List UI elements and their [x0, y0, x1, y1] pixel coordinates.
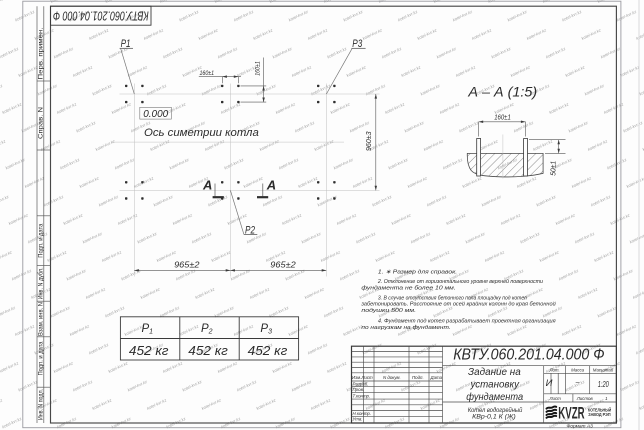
svg-text:kotel-kvr.kz: kotel-kvr.kz — [609, 212, 631, 226]
svg-text:kotel-kvr.kz: kotel-kvr.kz — [381, 46, 403, 60]
svg-text:kotel-kvr.kz: kotel-kvr.kz — [249, 286, 271, 300]
svg-text:965±2: 965±2 — [270, 261, 296, 270]
svg-text:kotel-kvr.kz: kotel-kvr.kz — [487, 0, 509, 4]
svg-text:1: 1 — [605, 396, 608, 401]
svg-text:kotel-kvr.kz: kotel-kvr.kz — [140, 286, 162, 300]
svg-text:Утв.: Утв. — [353, 417, 363, 422]
svg-text:kotel-kvr.kz: kotel-kvr.kz — [307, 27, 329, 41]
svg-text:kotel-kvr.kz: kotel-kvr.kz — [236, 379, 258, 393]
svg-text:kotel-kvr.kz: kotel-kvr.kz — [127, 64, 149, 78]
svg-text:подушки 500 мм.: подушки 500 мм. — [361, 308, 416, 314]
svg-text:kotel-kvr.kz: kotel-kvr.kz — [442, 157, 464, 171]
svg-text:960±3: 960±3 — [364, 131, 373, 151]
svg-text:kotel-kvr.kz: kotel-kvr.kz — [66, 268, 88, 282]
svg-text:kotel-kvr.kz: kotel-kvr.kz — [616, 323, 638, 337]
svg-text:kotel-kvr.kz: kotel-kvr.kz — [111, 101, 133, 115]
svg-text:kotel-kvr.kz: kotel-kvr.kz — [46, 249, 68, 263]
svg-text:kotel-kvr.kz: kotel-kvr.kz — [320, 249, 342, 263]
svg-text:kotel-kvr.kz: kotel-kvr.kz — [210, 249, 232, 263]
svg-text:kotel-kvr.kz: kotel-kvr.kz — [91, 397, 113, 411]
svg-text:kotel-kvr.kz: kotel-kvr.kz — [294, 120, 316, 134]
svg-text:установку: установку — [469, 380, 519, 391]
svg-text:kotel-kvr.kz: kotel-kvr.kz — [397, 9, 419, 23]
svg-text:kotel-kvr.kz: kotel-kvr.kz — [558, 268, 580, 282]
svg-text:kotel-kvr.kz: kotel-kvr.kz — [458, 120, 480, 134]
svg-text:Ось симетрии котла: Ось симетрии котла — [144, 127, 259, 139]
svg-text:Подп.: Подп. — [412, 375, 424, 380]
svg-text:0.000: 0.000 — [143, 109, 168, 120]
svg-text:kotel-kvr.kz: kotel-kvr.kz — [313, 138, 335, 152]
svg-text:kotel-kvr.kz: kotel-kvr.kz — [452, 323, 474, 337]
svg-text:kotel-kvr.kz: kotel-kvr.kz — [426, 194, 448, 208]
svg-text:фундамента: фундамента — [466, 391, 523, 403]
svg-text:4. Фундамент под котел разраба: 4. Фундамент под котел разрабатывает про… — [378, 319, 557, 325]
svg-text:kotel-kvr.kz: kotel-kvr.kz — [104, 305, 126, 319]
svg-text:kotel-kvr.kz: kotel-kvr.kz — [43, 194, 65, 208]
svg-text:kotel-kvr.kz: kotel-kvr.kz — [622, 120, 644, 134]
svg-text:N докум.: N докум. — [383, 375, 401, 380]
svg-text:kotel-kvr.kz: kotel-kvr.kz — [146, 397, 168, 411]
svg-text:kotel-kvr.kz: kotel-kvr.kz — [207, 194, 229, 208]
svg-text:kotel-kvr.kz: kotel-kvr.kz — [198, 27, 220, 41]
svg-text:kotel-kvr.kz: kotel-kvr.kz — [162, 360, 184, 374]
svg-text:Масштаб: Масштаб — [593, 368, 614, 373]
svg-text:kotel-kvr.kz: kotel-kvr.kz — [0, 360, 20, 374]
svg-text:kotel-kvr.kz: kotel-kvr.kz — [304, 286, 326, 300]
svg-text:kotel-kvr.kz: kotel-kvr.kz — [410, 231, 432, 245]
svg-text:kotel-kvr.kz: kotel-kvr.kz — [256, 83, 278, 97]
svg-text:kotel-kvr.kz: kotel-kvr.kz — [326, 360, 348, 374]
svg-text:2. Отклонение от горизонтально: 2. Отклонение от горизонтального уровня … — [377, 278, 544, 285]
svg-text:ЗАВОД РЭП: ЗАВОД РЭП — [588, 412, 610, 417]
svg-text:kotel-kvr.kz: kotel-kvr.kz — [349, 120, 371, 134]
svg-text:kotel-kvr.kz: kotel-kvr.kz — [85, 286, 107, 300]
svg-text:kotel-kvr.kz: kotel-kvr.kz — [471, 27, 493, 41]
svg-text:kotel-kvr.kz: kotel-kvr.kz — [272, 360, 294, 374]
svg-text:kotel-kvr.kz: kotel-kvr.kz — [600, 46, 622, 60]
svg-text:P1: P1 — [142, 323, 154, 336]
svg-text:kotel-kvr.kz: kotel-kvr.kz — [484, 249, 506, 263]
svg-text:kotel-kvr.kz: kotel-kvr.kz — [310, 397, 332, 411]
svg-text:Котел водогрейный: Котел водогрейный — [468, 407, 523, 414]
svg-text:kotel-kvr.kz: kotel-kvr.kz — [201, 83, 223, 97]
svg-text:kotel-kvr.kz: kotel-kvr.kz — [178, 323, 200, 337]
svg-text:kotel-kvr.kz: kotel-kvr.kz — [407, 175, 429, 189]
svg-text:kotel-kvr.kz: kotel-kvr.kz — [72, 64, 94, 78]
svg-text:kotel-kvr.kz: kotel-kvr.kz — [53, 360, 75, 374]
svg-text:kotel-kvr.kz: kotel-kvr.kz — [88, 27, 110, 41]
svg-text:kotel-kvr.kz: kotel-kvr.kz — [149, 138, 171, 152]
svg-text:kotel-kvr.kz: kotel-kvr.kz — [255, 397, 277, 411]
svg-text:kotel-kvr.kz: kotel-kvr.kz — [597, 305, 619, 319]
svg-text:kotel-kvr.kz: kotel-kvr.kz — [0, 249, 14, 263]
svg-text:kotel-kvr.kz: kotel-kvr.kz — [526, 27, 548, 41]
svg-text:kotel-kvr.kz: kotel-kvr.kz — [17, 64, 39, 78]
svg-text:kotel-kvr.kz: kotel-kvr.kz — [548, 101, 570, 115]
svg-text:kotel-kvr.kz: kotel-kvr.kz — [326, 46, 348, 60]
svg-text:kotel-kvr.kz: kotel-kvr.kz — [278, 157, 300, 171]
svg-text:kotel-kvr.kz: kotel-kvr.kz — [153, 194, 175, 208]
svg-text:А: А — [266, 178, 276, 193]
svg-text:Лит.: Лит. — [548, 368, 559, 373]
svg-text:kotel-kvr.kz: kotel-kvr.kz — [53, 46, 75, 60]
svg-text:kotel-kvr.kz: kotel-kvr.kz — [535, 194, 557, 208]
svg-text:kotel-kvr.kz: kotel-kvr.kz — [619, 64, 641, 78]
svg-text:КВр-0,1 К (Ж): КВр-0,1 К (Ж) — [472, 415, 516, 421]
svg-text:kotel-kvr.kz: kotel-kvr.kz — [297, 175, 319, 189]
svg-text:Формат А3: Формат А3 — [567, 424, 594, 430]
svg-text:kotel-kvr.kz: kotel-kvr.kz — [516, 175, 538, 189]
svg-text:kotel-kvr.kz: kotel-kvr.kz — [510, 64, 532, 78]
svg-text:kotel-kvr.kz: kotel-kvr.kz — [564, 64, 586, 78]
svg-text:kotel-kvr.kz: kotel-kvr.kz — [8, 212, 30, 226]
svg-text:160±1: 160±1 — [494, 115, 511, 122]
svg-text:kotel-kvr.kz: kotel-kvr.kz — [217, 360, 239, 374]
svg-text:kotel-kvr.kz: kotel-kvr.kz — [172, 212, 194, 226]
svg-text:kotel-kvr.kz: kotel-kvr.kz — [88, 342, 110, 356]
svg-text:kotel-kvr.kz: kotel-kvr.kz — [519, 231, 541, 245]
svg-text:kotel-kvr.kz: kotel-kvr.kz — [159, 305, 181, 319]
svg-text:–: – — [575, 379, 580, 386]
svg-text:А: А — [202, 178, 212, 193]
svg-text:kotel-kvr.kz: kotel-kvr.kz — [542, 0, 564, 4]
svg-text:kotel-kvr.kz: kotel-kvr.kz — [194, 286, 216, 300]
svg-text:kotel-kvr.kz: kotel-kvr.kz — [333, 157, 355, 171]
svg-text:kotel-kvr.kz: kotel-kvr.kz — [375, 249, 397, 263]
svg-text:kotel-kvr.kz: kotel-kvr.kz — [201, 397, 223, 411]
svg-text:kotel-kvr.kz: kotel-kvr.kz — [24, 175, 46, 189]
svg-text:kotel-kvr.kz: kotel-kvr.kz — [555, 212, 577, 226]
svg-text:kotel-kvr.kz: kotel-kvr.kz — [272, 46, 294, 60]
svg-text:kotel-kvr.kz: kotel-kvr.kz — [545, 46, 567, 60]
svg-text:Листов: Листов — [576, 396, 594, 401]
svg-text:kotel-kvr.kz: kotel-kvr.kz — [400, 64, 422, 78]
svg-text:kotel-kvr.kz: kotel-kvr.kz — [301, 231, 323, 245]
svg-text:kotel-kvr.kz: kotel-kvr.kz — [571, 175, 593, 189]
svg-text:kotel-kvr.kz: kotel-kvr.kz — [452, 9, 474, 23]
svg-text:kotel-kvr.kz: kotel-kvr.kz — [143, 27, 165, 41]
svg-text:kotel-kvr.kz: kotel-kvr.kz — [0, 342, 1, 356]
svg-text:kotel-kvr.kz: kotel-kvr.kz — [629, 231, 644, 245]
svg-text:kotel-kvr.kz: kotel-kvr.kz — [355, 231, 377, 245]
svg-text:kotel-kvr.kz: kotel-kvr.kz — [50, 305, 72, 319]
svg-text:kotel-kvr.kz: kotel-kvr.kz — [98, 194, 120, 208]
svg-text:kotel-kvr.kz: kotel-kvr.kz — [217, 46, 239, 60]
svg-text:kotel-kvr.kz: kotel-kvr.kz — [288, 9, 310, 23]
svg-text:Взам. инв. N: Взам. инв. N — [38, 302, 44, 336]
svg-text:kotel-kvr.kz: kotel-kvr.kz — [50, 0, 72, 4]
svg-text:kotel-kvr.kz: kotel-kvr.kz — [181, 379, 203, 393]
svg-text:452 кг: 452 кг — [188, 343, 228, 358]
svg-text:kotel-kvr.kz: kotel-kvr.kz — [635, 27, 644, 41]
svg-text:160±1: 160±1 — [255, 61, 262, 76]
svg-text:P2: P2 — [201, 323, 213, 336]
svg-text:kotel-kvr.kz: kotel-kvr.kz — [91, 83, 113, 97]
svg-text:И: И — [546, 378, 553, 389]
svg-text:kotel-kvr.kz: kotel-kvr.kz — [72, 379, 94, 393]
svg-text:kotel-kvr.kz: kotel-kvr.kz — [11, 268, 33, 282]
svg-text:kotel-kvr.kz: kotel-kvr.kz — [0, 46, 20, 60]
svg-text:по нагрузкам на фундамент.: по нагрузкам на фундамент. — [361, 325, 450, 331]
svg-text:kotel-kvr.kz: kotel-kvr.kz — [616, 9, 638, 23]
svg-text:kotel-kvr.kz: kotel-kvr.kz — [626, 175, 644, 189]
svg-text:kotel-kvr.kz: kotel-kvr.kz — [117, 212, 139, 226]
svg-text:kotel-kvr.kz: kotel-kvr.kz — [281, 212, 303, 226]
svg-text:kotel-kvr.kz: kotel-kvr.kz — [619, 379, 641, 393]
svg-text:kotel-kvr.kz: kotel-kvr.kz — [214, 0, 236, 4]
svg-text:kotel-kvr.kz: kotel-kvr.kz — [323, 0, 345, 4]
svg-text:kotel-kvr.kz: kotel-kvr.kz — [104, 0, 126, 4]
svg-text:kotel-kvr.kz: kotel-kvr.kz — [14, 9, 36, 23]
svg-text:Масса: Масса — [571, 368, 585, 373]
svg-text:kotel-kvr.kz: kotel-kvr.kz — [423, 138, 445, 152]
svg-text:kotel-kvr.kz: kotel-kvr.kz — [561, 323, 583, 337]
svg-text:kotel-kvr.kz: kotel-kvr.kz — [362, 27, 384, 41]
svg-text:1. ∗ Размер для справок.: 1. ∗ Размер для справок. — [378, 269, 457, 275]
svg-text:kotel-kvr.kz: kotel-kvr.kz — [0, 0, 17, 4]
svg-text:kotel-kvr.kz: kotel-kvr.kz — [317, 194, 339, 208]
svg-text:452 кг: 452 кг — [129, 343, 169, 358]
svg-text:kotel-kvr.kz: kotel-kvr.kz — [568, 120, 590, 134]
svg-text:Разраб.: Разраб. — [353, 381, 369, 386]
svg-text:kotel-kvr.kz: kotel-kvr.kz — [162, 46, 184, 60]
svg-text:kotel-kvr.kz: kotel-kvr.kz — [259, 138, 281, 152]
svg-text:3. В случае отсутствия бетонно: 3. В случае отсутствия бетонного пола пл… — [378, 295, 527, 301]
svg-text:kotel-kvr.kz: kotel-kvr.kz — [223, 157, 245, 171]
svg-text:kotel-kvr.kz: kotel-kvr.kz — [252, 27, 274, 41]
svg-text:kotel-kvr.kz: kotel-kvr.kz — [204, 138, 226, 152]
svg-text:kotel-kvr.kz: kotel-kvr.kz — [416, 27, 438, 41]
svg-text:kotel-kvr.kz: kotel-kvr.kz — [507, 9, 529, 23]
svg-text:kotel-kvr.kz: kotel-kvr.kz — [291, 64, 313, 78]
svg-text:kotel-kvr.kz: kotel-kvr.kz — [342, 9, 364, 23]
svg-text:kotel-kvr.kz: kotel-kvr.kz — [233, 323, 255, 337]
svg-text:kotel-kvr.kz: kotel-kvr.kz — [603, 101, 625, 115]
svg-text:Подп. и дата: Подп. и дата — [38, 223, 44, 258]
svg-text:kotel-kvr.kz: kotel-kvr.kz — [133, 175, 155, 189]
svg-text:kotel-kvr.kz: kotel-kvr.kz — [597, 0, 619, 4]
svg-text:kotel-kvr.kz: kotel-kvr.kz — [159, 0, 181, 4]
svg-text:kotel-kvr.kz: kotel-kvr.kz — [445, 212, 467, 226]
svg-text:kotel-kvr.kz: kotel-kvr.kz — [268, 0, 290, 4]
svg-text:965±2: 965±2 — [174, 261, 200, 270]
svg-text:452 кг: 452 кг — [248, 343, 288, 358]
svg-text:Подп. и дата: Подп. и дата — [38, 341, 44, 376]
svg-text:kotel-kvr.kz: kotel-kvr.kz — [420, 83, 442, 97]
svg-text:50±1: 50±1 — [551, 161, 558, 176]
svg-text:kotel-kvr.kz: kotel-kvr.kz — [120, 268, 142, 282]
svg-text:kotel-kvr.kz: kotel-kvr.kz — [291, 379, 313, 393]
svg-text:kotel-kvr.kz: kotel-kvr.kz — [339, 268, 361, 282]
svg-text:kotel-kvr.kz: kotel-kvr.kz — [439, 101, 461, 115]
svg-text:kotel-kvr.kz: kotel-kvr.kz — [330, 101, 352, 115]
svg-text:kotel-kvr.kz: kotel-kvr.kz — [233, 9, 255, 23]
svg-text:kotel-kvr.kz: kotel-kvr.kz — [169, 157, 191, 171]
svg-text:kotel-kvr.kz: kotel-kvr.kz — [336, 212, 358, 226]
svg-text:kotel-kvr.kz: kotel-kvr.kz — [107, 360, 129, 374]
svg-text:kotel-kvr.kz: kotel-kvr.kz — [461, 175, 483, 189]
svg-text:kotel-kvr.kz: kotel-kvr.kz — [1, 416, 23, 430]
svg-text:kotel-kvr.kz: kotel-kvr.kz — [352, 175, 374, 189]
svg-text:kotel-kvr.kz: kotel-kvr.kz — [494, 101, 516, 115]
svg-text:kotel-kvr.kz: kotel-kvr.kz — [455, 64, 477, 78]
svg-text:kotel-kvr.kz: kotel-kvr.kz — [62, 212, 84, 226]
svg-text:kotel-kvr.kz: kotel-kvr.kz — [574, 231, 596, 245]
svg-text:kotel-kvr.kz: kotel-kvr.kz — [323, 305, 345, 319]
svg-text:kotel-kvr.kz: kotel-kvr.kz — [632, 286, 644, 300]
svg-text:kotel-kvr.kz: kotel-kvr.kz — [581, 27, 603, 41]
svg-text:kotel-kvr.kz: kotel-kvr.kz — [635, 342, 644, 356]
svg-text:kotel-kvr.kz: kotel-kvr.kz — [178, 9, 200, 23]
svg-text:kotel-kvr.kz: kotel-kvr.kz — [587, 138, 609, 152]
svg-text:kotel-kvr.kz: kotel-kvr.kz — [384, 101, 406, 115]
svg-text:kotel-kvr.kz: kotel-kvr.kz — [433, 0, 455, 4]
svg-text:kotel-kvr.kz: kotel-kvr.kz — [606, 157, 628, 171]
svg-text:Инв. N подл.: Инв. N подл. — [38, 389, 44, 420]
svg-text:kotel-kvr.kz: kotel-kvr.kz — [14, 323, 36, 337]
svg-text:Изм.Лист: Изм.Лист — [352, 375, 373, 380]
svg-text:kotel-kvr.kz: kotel-kvr.kz — [79, 175, 101, 189]
svg-text:kotel-kvr.kz: kotel-kvr.kz — [590, 194, 612, 208]
svg-text:kotel-kvr.kz: kotel-kvr.kz — [378, 0, 400, 4]
svg-text:kotel-kvr.kz: kotel-kvr.kz — [391, 212, 413, 226]
svg-text:забетонировать. Расстояние от: забетонировать. Расстояние от осей крайн… — [360, 301, 556, 308]
svg-text:kotel-kvr.kz: kotel-kvr.kz — [114, 157, 136, 171]
svg-text:kotel-kvr.kz: kotel-kvr.kz — [416, 342, 438, 356]
svg-text:КВТУ.060.201.04.000 Ф: КВТУ.060.201.04.000 Ф — [53, 9, 149, 23]
svg-text:kotel-kvr.kz: kotel-kvr.kz — [1, 101, 23, 115]
svg-text:kotel-kvr.kz: kotel-kvr.kz — [481, 194, 503, 208]
svg-text:kotel-kvr.kz: kotel-kvr.kz — [561, 9, 583, 23]
svg-text:kotel-kvr.kz: kotel-kvr.kz — [584, 83, 606, 97]
svg-text:kotel-kvr.kz: kotel-kvr.kz — [346, 64, 368, 78]
svg-text:kotel-kvr.kz: kotel-kvr.kz — [101, 249, 123, 263]
svg-text:kotel-kvr.kz: kotel-kvr.kz — [75, 120, 97, 134]
svg-text:kotel-kvr.kz: kotel-kvr.kz — [506, 323, 528, 337]
svg-text:kotel-kvr.kz: kotel-kvr.kz — [371, 194, 393, 208]
svg-text:kotel-kvr.kz: kotel-kvr.kz — [136, 231, 158, 245]
svg-text:Инв. N дубл.: Инв. N дубл. — [38, 267, 44, 299]
svg-text:Дата: Дата — [430, 375, 443, 380]
svg-text:kotel-kvr.kz: kotel-kvr.kz — [490, 46, 512, 60]
svg-text:kotel-kvr.kz: kotel-kvr.kz — [0, 138, 7, 152]
svg-text:kotel-kvr.kz: kotel-kvr.kz — [577, 286, 599, 300]
svg-text:kotel-kvr.kz: kotel-kvr.kz — [69, 323, 91, 337]
svg-text:KVZR: KVZR — [558, 403, 584, 422]
svg-text:Пров.: Пров. — [353, 387, 365, 392]
svg-text:kotel-kvr.kz: kotel-kvr.kz — [436, 46, 458, 60]
svg-text:Перв. примен.: Перв. примен. — [38, 27, 44, 79]
svg-text:kotel-kvr.kz: kotel-kvr.kz — [307, 342, 329, 356]
svg-text:kotel-kvr.kz: kotel-kvr.kz — [0, 305, 17, 319]
svg-text:kotel-kvr.kz: kotel-kvr.kz — [0, 83, 4, 97]
svg-text:kotel-kvr.kz: kotel-kvr.kz — [532, 138, 554, 152]
svg-text:kotel-kvr.kz: kotel-kvr.kz — [56, 101, 78, 115]
svg-text:kotel-kvr.kz: kotel-kvr.kz — [214, 305, 236, 319]
svg-text:kotel-kvr.kz: kotel-kvr.kz — [0, 397, 4, 411]
svg-text:Задание на: Задание на — [468, 367, 521, 378]
svg-text:1:20: 1:20 — [598, 380, 610, 389]
svg-text:kotel-kvr.kz: kotel-kvr.kz — [429, 249, 451, 263]
svg-text:kotel-kvr.kz: kotel-kvr.kz — [262, 194, 284, 208]
svg-text:kotel-kvr.kz: kotel-kvr.kz — [82, 231, 104, 245]
svg-text:А – А (1:5): А – А (1:5) — [467, 85, 537, 100]
svg-text:kotel-kvr.kz: kotel-kvr.kz — [0, 27, 1, 41]
svg-text:kotel-kvr.kz: kotel-kvr.kz — [465, 231, 487, 245]
svg-text:kotel-kvr.kz: kotel-kvr.kz — [362, 342, 384, 356]
svg-text:КВТУ.060.201.04.000 Ф: КВТУ.060.201.04.000 Ф — [453, 347, 604, 364]
svg-text:160±1: 160±1 — [200, 70, 215, 77]
svg-text:Лист: Лист — [549, 396, 562, 401]
svg-text:kotel-kvr.kz: kotel-kvr.kz — [95, 138, 117, 152]
svg-text:фундамента не более 10 мм.: фундамента не более 10 мм. — [361, 286, 455, 292]
svg-text:kotel-kvr.kz: kotel-kvr.kz — [539, 249, 561, 263]
svg-text:P3: P3 — [260, 323, 272, 336]
svg-text:kotel-kvr.kz: kotel-kvr.kz — [275, 101, 297, 115]
svg-text:Справ. N: Справ. N — [38, 107, 44, 139]
svg-text:kotel-kvr.kz: kotel-kvr.kz — [59, 157, 81, 171]
svg-text:kotel-kvr.kz: kotel-kvr.kz — [243, 175, 265, 189]
svg-text:kotel-kvr.kz: kotel-kvr.kz — [127, 379, 149, 393]
svg-text:kotel-kvr.kz: kotel-kvr.kz — [191, 231, 213, 245]
svg-text:kotel-kvr.kz: kotel-kvr.kz — [500, 212, 522, 226]
svg-text:kotel-kvr.kz: kotel-kvr.kz — [387, 157, 409, 171]
svg-text:kotel-kvr.kz: kotel-kvr.kz — [17, 379, 39, 393]
svg-text:kotel-kvr.kz: kotel-kvr.kz — [0, 194, 10, 208]
svg-text:Т.контр.: Т.контр. — [353, 393, 371, 398]
svg-text:Н.контр.: Н.контр. — [353, 411, 372, 416]
svg-text:kotel-kvr.kz: kotel-kvr.kz — [268, 305, 290, 319]
svg-text:kotel-kvr.kz: kotel-kvr.kz — [404, 120, 426, 134]
svg-text:kotel-kvr.kz: kotel-kvr.kz — [593, 249, 615, 263]
svg-text:kotel-kvr.kz: kotel-kvr.kz — [146, 83, 168, 97]
svg-text:kotel-kvr.kz: kotel-kvr.kz — [165, 101, 187, 115]
svg-text:kotel-kvr.kz: kotel-kvr.kz — [37, 83, 59, 97]
